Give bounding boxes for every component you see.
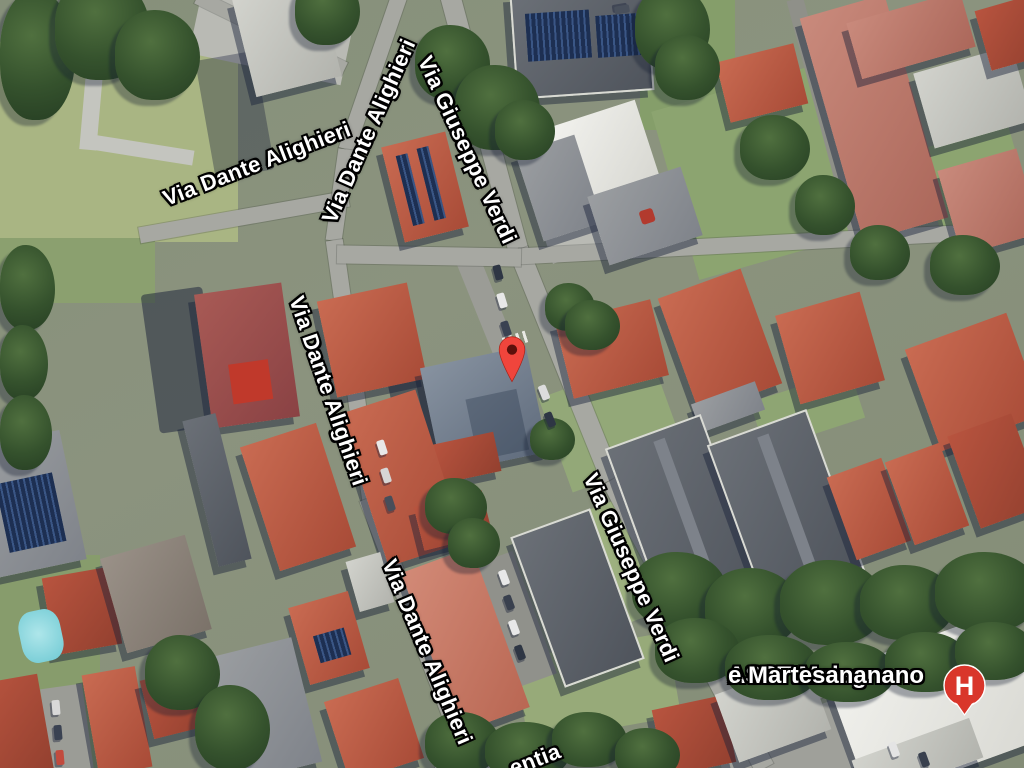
car <box>53 725 62 741</box>
tree <box>740 115 810 180</box>
tree <box>0 245 55 330</box>
solar-panels <box>525 9 592 61</box>
tree <box>850 225 910 280</box>
tree <box>195 685 270 768</box>
tree <box>655 35 720 100</box>
hospital-pin-icon[interactable]: H <box>941 664 988 717</box>
roof-detail <box>638 208 656 226</box>
tree <box>565 300 620 350</box>
car <box>492 264 504 281</box>
satellite-map[interactable]: Via Dante Alighieri Via Dante Alighieri … <box>0 0 1024 768</box>
roof-detail <box>228 359 273 404</box>
car <box>55 750 64 766</box>
tree <box>448 518 500 568</box>
tree <box>930 235 1000 295</box>
car <box>51 700 60 716</box>
road-cross-west <box>337 245 521 266</box>
tree <box>0 325 48 400</box>
destination-pin-icon[interactable] <box>498 336 526 383</box>
tree <box>795 175 855 235</box>
roof-ridge <box>757 434 820 581</box>
building-red-roof <box>658 269 782 414</box>
tree <box>0 395 52 470</box>
building-red-roof <box>775 292 885 405</box>
tree <box>935 552 1024 632</box>
hospital-badge-letter: H <box>955 671 975 701</box>
tree <box>495 100 555 160</box>
tree <box>115 10 200 100</box>
building-red-roof <box>324 678 424 768</box>
hospital-poi-label-line2: e Martesana <box>728 663 867 688</box>
solar-panels <box>0 472 66 553</box>
solar-panels <box>313 628 351 664</box>
shed-row <box>182 413 251 567</box>
